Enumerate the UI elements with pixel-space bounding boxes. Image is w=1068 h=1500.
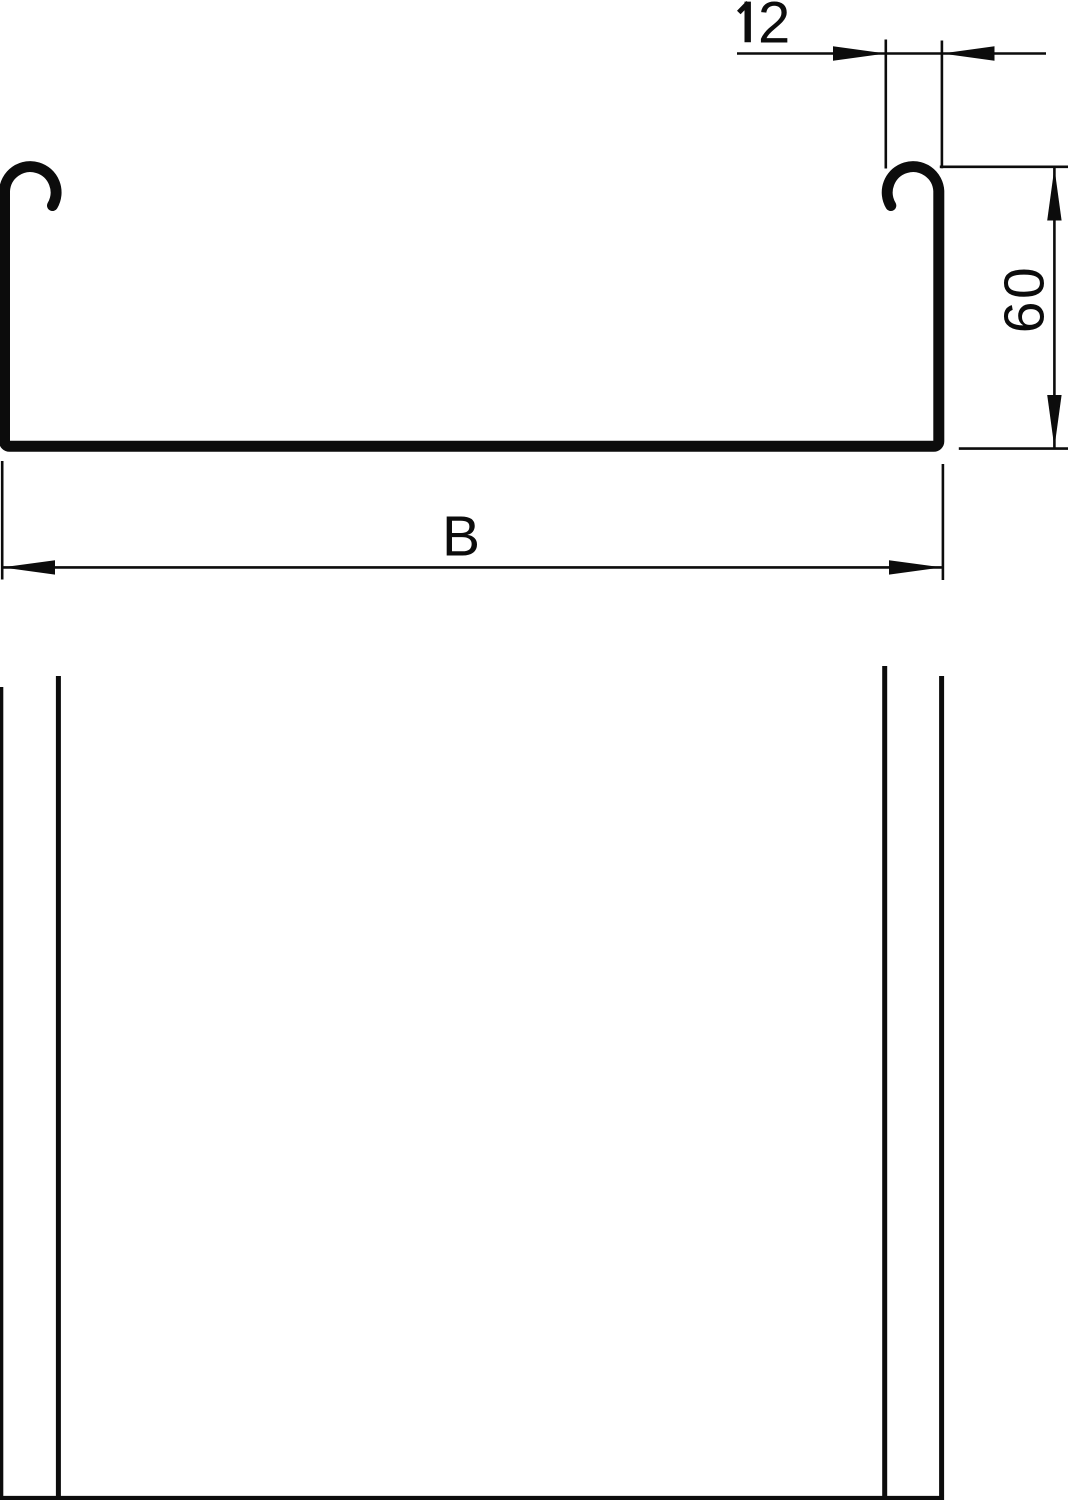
svg-text:B: B	[442, 505, 480, 569]
svg-text:60: 60	[993, 265, 1057, 333]
svg-text:2: 2	[758, 0, 790, 55]
